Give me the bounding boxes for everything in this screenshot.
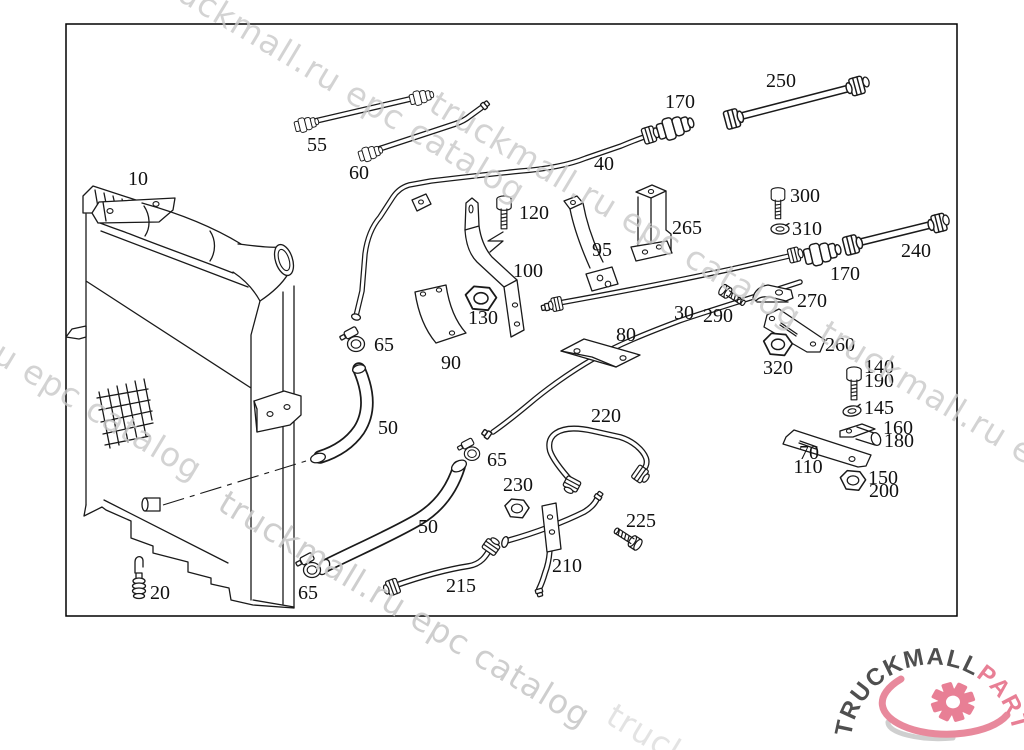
clamp-part-160 — [840, 424, 882, 447]
part-label-145: 145 — [864, 397, 894, 419]
part-label-100: 100 — [513, 260, 543, 282]
clamp-part-65-upper — [339, 326, 365, 351]
part-label-250: 250 — [766, 70, 796, 92]
part-label-50: 50 — [418, 516, 438, 538]
nut-part-230 — [505, 499, 529, 518]
part-label-60: 60 — [349, 162, 369, 184]
part-label-300: 300 — [790, 185, 820, 207]
part-label-20: 20 — [150, 582, 170, 604]
part-label-65: 65 — [374, 334, 394, 356]
part-label-50: 50 — [378, 417, 398, 439]
part-label-310: 310 — [792, 218, 822, 240]
part-label-215: 215 — [446, 575, 476, 597]
connector-part-170-upper — [655, 111, 696, 142]
part-label-225: 225 — [626, 510, 656, 532]
pipe-part-250 — [723, 76, 870, 130]
part-label-90: 90 — [441, 352, 461, 374]
part-label-170: 170 — [830, 263, 860, 285]
part-label-55: 55 — [307, 134, 327, 156]
part-label-80: 80 — [616, 324, 636, 346]
part-label-220: 220 — [591, 405, 621, 427]
part-label-320: 320 — [763, 357, 793, 379]
part-label-65: 65 — [298, 582, 318, 604]
part-label-200: 200 — [869, 480, 899, 502]
nut-part-150 — [840, 471, 865, 491]
bracket-part-90 — [415, 285, 466, 343]
part-label-130: 130 — [468, 307, 498, 329]
pin-part-20 — [133, 557, 146, 599]
watermark-layer: truckmall.ru epc catalogtruckmall.ru epc… — [0, 0, 1024, 750]
part-label-30: 30 — [674, 302, 694, 324]
part-label-230: 230 — [503, 474, 533, 496]
part-label-10: 10 — [128, 168, 148, 190]
truckmall-gear-icon — [925, 677, 980, 727]
part-label-110: 110 — [793, 456, 822, 478]
pipe-part-220 — [549, 429, 652, 496]
pipe-part-240 — [842, 213, 950, 256]
catalog-page: 1055602501704012010095265300310240170130… — [0, 0, 1024, 750]
watermark-text: truckmall.ru epc catalog — [600, 695, 986, 750]
bolt-part-300 — [771, 188, 785, 219]
watermark-text: truckmall.ru epc catalog — [0, 235, 210, 488]
clamp-part-65-middle — [456, 438, 479, 461]
part-label-290: 290 — [703, 305, 733, 327]
part-label-40: 40 — [594, 153, 614, 175]
part-label-210: 210 — [552, 555, 582, 577]
nut-part-320 — [764, 333, 793, 355]
washer-part-145 — [842, 404, 861, 417]
part-label-95: 95 — [592, 239, 612, 261]
hose-part-50-upper — [310, 363, 367, 464]
part-label-240: 240 — [901, 240, 931, 262]
part-label-170: 170 — [665, 91, 695, 113]
watermark-text: truckmall.ru epc catalog — [813, 312, 1024, 565]
part-label-65: 65 — [487, 449, 507, 471]
washer-part-310 — [771, 224, 789, 235]
part-label-180: 180 — [884, 430, 914, 452]
part-label-120: 120 — [519, 202, 549, 224]
